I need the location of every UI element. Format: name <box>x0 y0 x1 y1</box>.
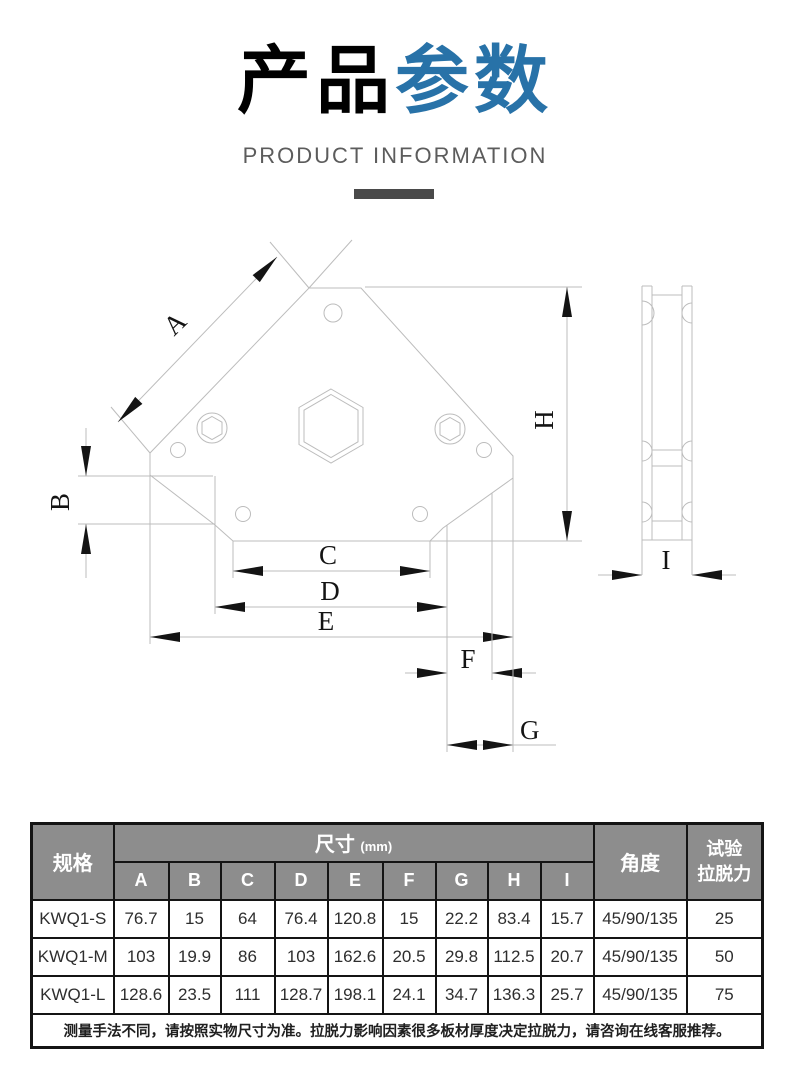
arrowhead <box>612 570 642 580</box>
col-header-angle: 角度 <box>594 824 687 900</box>
value-cell: 24.1 <box>383 976 436 1014</box>
value-cell: 15 <box>169 900 221 938</box>
bottom-right-hole <box>413 507 428 522</box>
pull-cell: 25 <box>687 900 763 938</box>
spec-name: KWQ1-S <box>32 900 114 938</box>
dim-label-g: G <box>520 715 540 745</box>
value-cell: 103 <box>275 938 328 976</box>
bottom-left-hole <box>236 507 251 522</box>
arrowhead <box>150 632 180 642</box>
size-label: 尺寸 <box>315 834 355 856</box>
arrowhead <box>562 511 572 541</box>
arrowhead <box>492 668 522 678</box>
col-header-f: F <box>383 862 436 900</box>
value-cell: 198.1 <box>328 976 383 1014</box>
dim-label-i: I <box>662 545 671 575</box>
front-view <box>150 288 513 541</box>
screw-bump <box>682 502 692 522</box>
dim-label-e: E <box>318 606 335 636</box>
dimension-a: A <box>111 240 352 453</box>
value-cell: 120.8 <box>328 900 383 938</box>
dim-label-c: C <box>319 540 337 570</box>
technical-drawing: A B C D E <box>0 228 790 818</box>
value-cell: 136.3 <box>488 976 541 1014</box>
arrowhead <box>253 257 277 282</box>
angle-cell: 45/90/135 <box>594 938 687 976</box>
side-view <box>642 286 692 575</box>
value-cell: 64 <box>221 900 275 938</box>
value-cell: 86 <box>221 938 275 976</box>
col-header-e: E <box>328 862 383 900</box>
arrowhead <box>447 740 477 750</box>
top-hole <box>324 304 342 322</box>
value-cell: 76.4 <box>275 900 328 938</box>
angle-cell: 45/90/135 <box>594 900 687 938</box>
left-hex-hole <box>202 417 222 440</box>
value-cell: 128.6 <box>114 976 169 1014</box>
dimension-f: F <box>405 493 536 680</box>
value-cell: 83.4 <box>488 900 541 938</box>
arrowhead <box>118 397 142 422</box>
value-cell: 20.7 <box>541 938 594 976</box>
arrowhead <box>81 524 91 554</box>
spec-table: 规格 尺寸 (mm) 角度 试验 拉脱力 A B C D E F G H <box>30 822 764 1049</box>
value-cell: 20.5 <box>383 938 436 976</box>
product-parameter-page: 产品参数 PRODUCT INFORMATION A <box>0 0 790 1092</box>
col-header-h: H <box>488 862 541 900</box>
table-note-row: 测量手法不同，请按照实物尺寸为准。拉脱力影响因素很多板材厚度决定拉脱力，请咨询在… <box>32 1014 763 1048</box>
col-header-spec: 规格 <box>32 824 114 900</box>
value-cell: 15.7 <box>541 900 594 938</box>
arrowhead <box>483 632 513 642</box>
arrowhead <box>400 566 430 576</box>
col-header-a: A <box>114 862 169 900</box>
col-header-size: 尺寸 (mm) <box>114 824 594 862</box>
page-title: 产品参数 <box>0 42 790 120</box>
spec-name: KWQ1-M <box>32 938 114 976</box>
pull-line2: 拉脱力 <box>697 864 751 884</box>
title-divider-bar <box>354 189 434 199</box>
dim-label-d: D <box>320 576 340 606</box>
screw-bump <box>642 502 652 522</box>
pull-line1: 试验 <box>706 839 742 859</box>
size-unit: (mm) <box>360 839 392 854</box>
value-cell: 76.7 <box>114 900 169 938</box>
right-hex-hole <box>440 418 460 441</box>
angle-cell: 45/90/135 <box>594 976 687 1014</box>
value-cell: 34.7 <box>436 976 488 1014</box>
col-header-pull-force: 试验 拉脱力 <box>687 824 763 900</box>
table-row-kwq1-m: KWQ1-M 103 19.9 86 103 162.6 20.5 29.8 1… <box>32 938 763 976</box>
pull-cell: 50 <box>687 938 763 976</box>
arrowhead <box>215 602 245 612</box>
arrowhead <box>692 570 722 580</box>
dimension-i: I <box>598 545 736 580</box>
value-cell: 111 <box>221 976 275 1014</box>
center-hex-outer <box>299 389 363 463</box>
value-cell: 15 <box>383 900 436 938</box>
center-hex-inner <box>304 395 358 458</box>
dim-label-b: B <box>45 493 75 511</box>
dim-label-f: F <box>460 644 475 674</box>
value-cell: 162.6 <box>328 938 383 976</box>
col-header-d: D <box>275 862 328 900</box>
page-title-blue: 参数 <box>395 39 553 122</box>
dim-label-a: A <box>157 306 192 341</box>
value-cell: 103 <box>114 938 169 976</box>
spec-name: KWQ1-L <box>32 976 114 1014</box>
dimension-b: B <box>45 428 215 578</box>
screw-bump <box>682 303 692 323</box>
pull-cell: 75 <box>687 976 763 1014</box>
value-cell: 128.7 <box>275 976 328 1014</box>
value-cell: 23.5 <box>169 976 221 1014</box>
measurement-note: 测量手法不同，请按照实物尺寸为准。拉脱力影响因素很多板材厚度决定拉脱力，请咨询在… <box>32 1014 763 1048</box>
page-subtitle: PRODUCT INFORMATION <box>0 143 790 169</box>
value-cell: 22.2 <box>436 900 488 938</box>
table-row-kwq1-l: KWQ1-L 128.6 23.5 111 128.7 198.1 24.1 3… <box>32 976 763 1014</box>
arrowhead <box>417 602 447 612</box>
arrowhead <box>562 287 572 317</box>
value-cell: 112.5 <box>488 938 541 976</box>
col-header-b: B <box>169 862 221 900</box>
value-cell: 29.8 <box>436 938 488 976</box>
col-header-c: C <box>221 862 275 900</box>
left-small-hole <box>171 443 186 458</box>
table-row-kwq1-s: KWQ1-S 76.7 15 64 76.4 120.8 15 22.2 83.… <box>32 900 763 938</box>
value-cell: 19.9 <box>169 938 221 976</box>
dimension-g: G <box>447 478 556 752</box>
arrowhead <box>81 446 91 476</box>
page-title-black: 产品 <box>237 39 395 122</box>
col-header-i: I <box>541 862 594 900</box>
dim-label-h: H <box>529 410 559 430</box>
arrowhead <box>483 740 513 750</box>
dimension-h: H <box>365 287 582 541</box>
arrowhead <box>233 566 263 576</box>
screw-bump <box>642 441 652 461</box>
value-cell: 25.7 <box>541 976 594 1014</box>
col-header-g: G <box>436 862 488 900</box>
dimension-c: C <box>233 540 430 578</box>
screw-bump <box>682 441 692 461</box>
right-small-hole <box>477 443 492 458</box>
arrowhead <box>417 668 447 678</box>
